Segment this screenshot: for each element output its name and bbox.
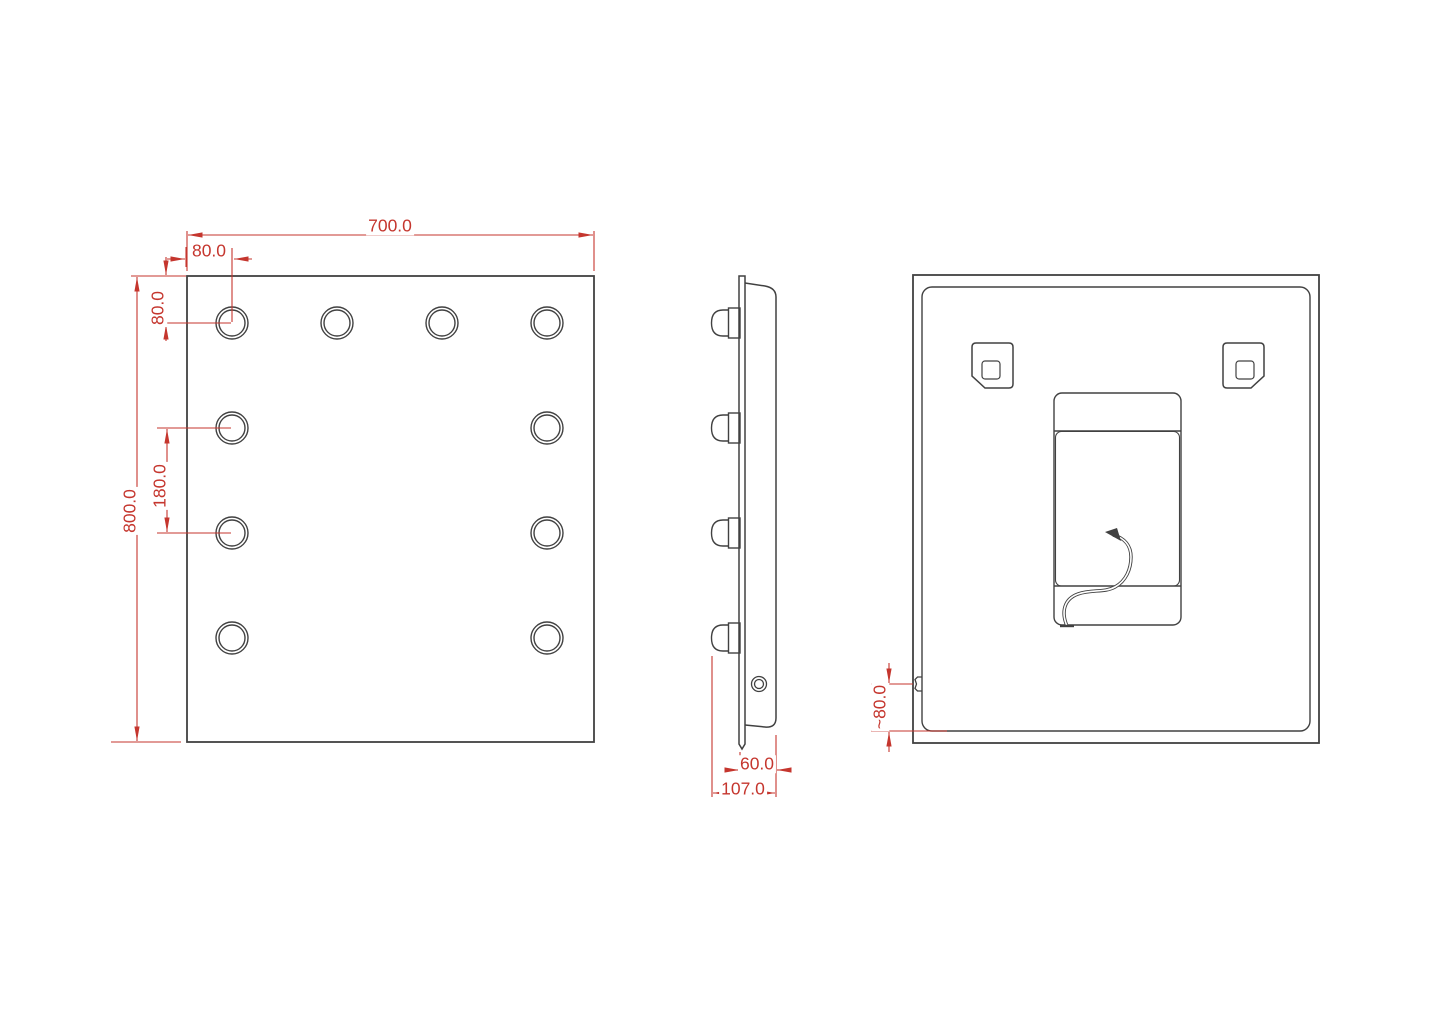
bulb-hole [321,307,353,339]
mirror-plate [187,276,594,742]
switch-tab [915,677,922,691]
dim-switch-height-label: ~80.0 [871,683,889,731]
side-dimensions [712,656,790,797]
bulb-profile [712,518,741,548]
technical-drawing-svg [0,0,1445,1021]
bulb-hole [531,517,563,549]
mounting-bracket-right [1223,343,1264,388]
bulb-hole [216,622,248,654]
front-dimensions [111,231,594,742]
dim-hole-pitch-label: 180.0 [151,462,169,510]
back-outer-edge [913,275,1319,743]
driver-box [1054,393,1181,625]
bulb-holes [216,307,563,654]
dim-hole-inset-x-label: 80.0 [190,242,228,260]
bulb-profiles [712,308,741,653]
bulb-profile [712,308,741,338]
bulb-hole [426,307,458,339]
dim-hole-inset-y-label: 80.0 [149,289,167,327]
bracket-keyhole [1236,361,1254,379]
back-box-profile [745,283,776,727]
bulb-hole [531,622,563,654]
mirror-glass-profile [739,276,745,749]
bulb-profile [712,413,741,443]
bulb-hole [531,412,563,444]
dim-height-label: 800.0 [121,487,139,535]
bulb-hole [531,307,563,339]
drawing-canvas: 700.0 80.0 80.0 180.0 800.0 60.0 107.0 ~… [0,0,1445,1021]
cable-arrowhead [1105,528,1121,541]
back-view [913,275,1319,743]
dim-width-label: 700.0 [366,217,414,235]
side-view [712,276,777,749]
bulb-profile [712,623,741,653]
dim-total-depth-label: 107.0 [719,780,767,798]
bracket-keyhole [982,361,1000,379]
power-cable [1060,528,1131,626]
dim-body-depth-label: 60.0 [738,755,776,773]
sensor-knob [752,677,767,692]
mounting-bracket-left [972,343,1013,388]
front-view [187,276,594,742]
back-panel [922,287,1310,731]
